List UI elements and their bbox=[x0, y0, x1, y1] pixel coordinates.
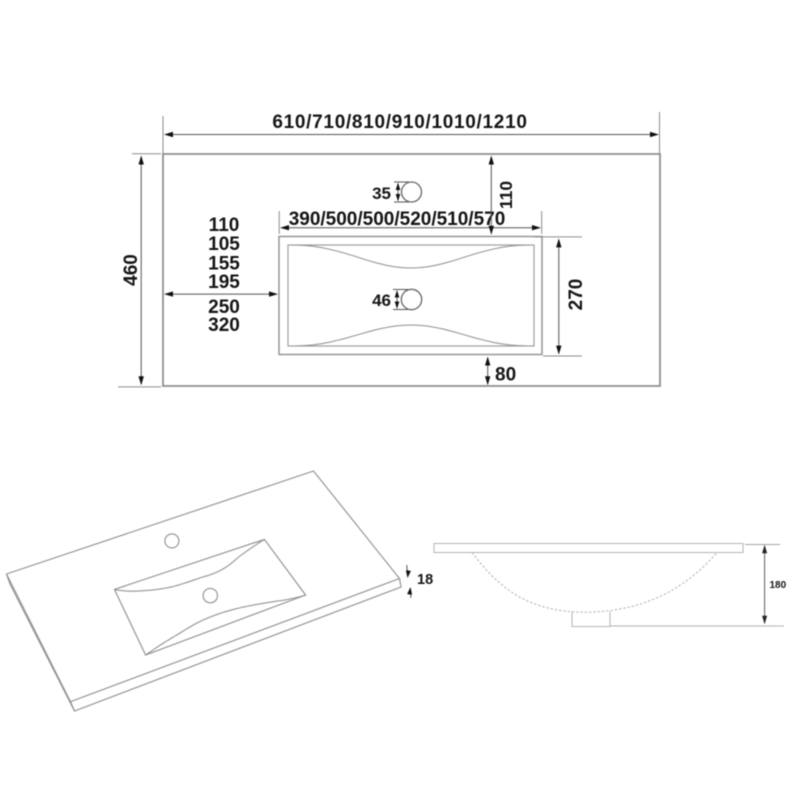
svg-text:80: 80 bbox=[495, 365, 516, 386]
svg-text:320: 320 bbox=[208, 315, 240, 336]
svg-text:195: 195 bbox=[208, 272, 240, 293]
svg-text:46: 46 bbox=[372, 291, 391, 310]
svg-text:610/710/810/910/1010/1210: 610/710/810/910/1010/1210 bbox=[272, 112, 527, 133]
svg-text:110: 110 bbox=[496, 181, 516, 209]
svg-text:390/500/500/520/510/570: 390/500/500/520/510/570 bbox=[289, 209, 506, 230]
svg-text:18: 18 bbox=[417, 572, 433, 588]
svg-text:460: 460 bbox=[121, 254, 142, 286]
svg-text:110: 110 bbox=[209, 215, 240, 236]
svg-text:35: 35 bbox=[372, 184, 391, 203]
svg-text:105: 105 bbox=[208, 234, 240, 255]
svg-text:180: 180 bbox=[770, 580, 787, 591]
svg-text:270: 270 bbox=[566, 279, 587, 311]
